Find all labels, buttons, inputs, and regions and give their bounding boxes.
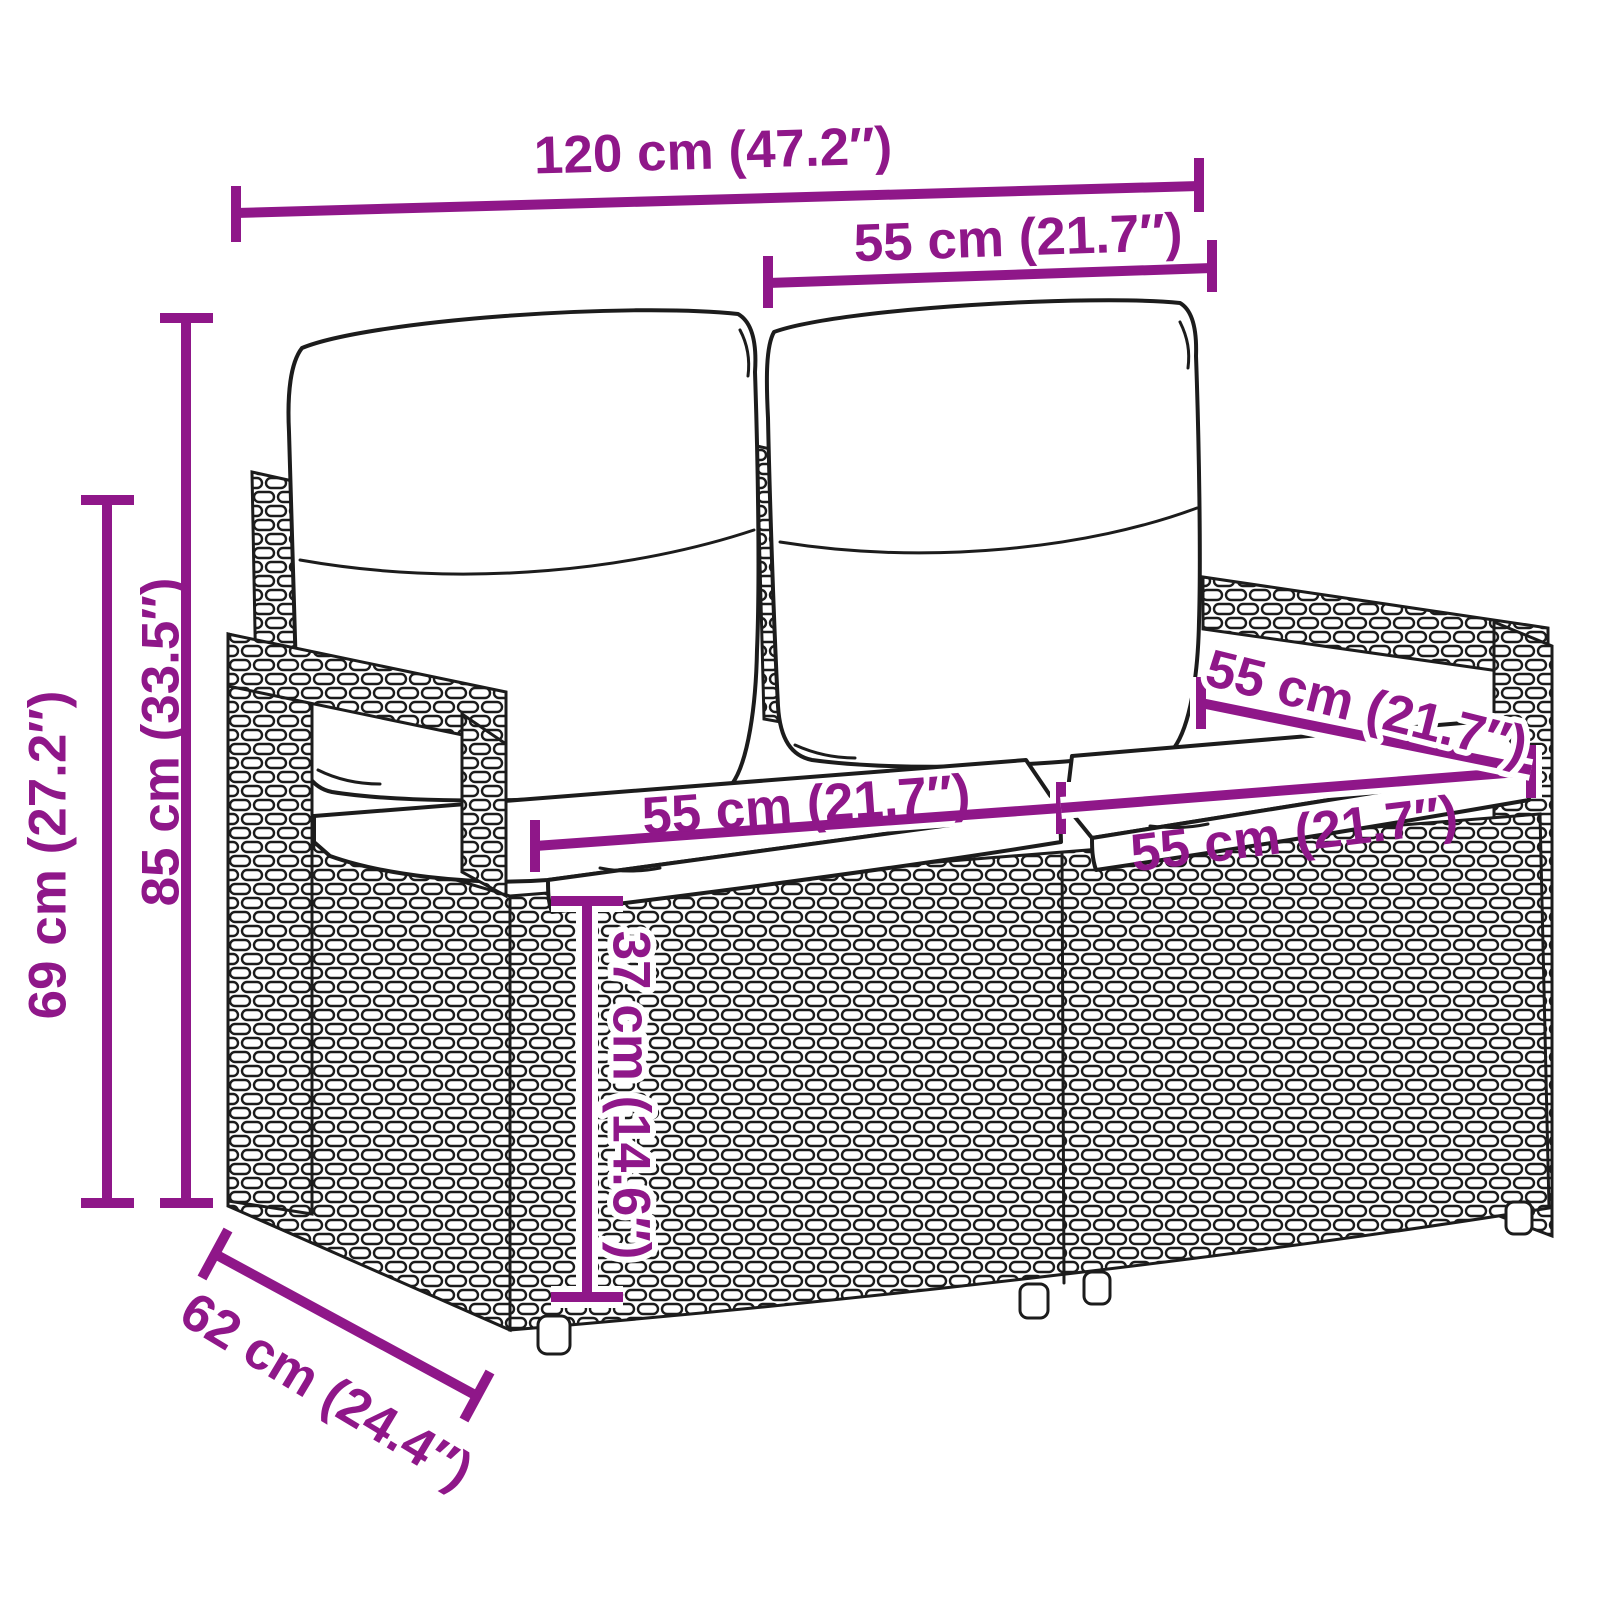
bench-foot — [1084, 1272, 1110, 1304]
dim-total-height: 85 cm (33.5″) — [132, 318, 213, 1203]
back-cushion-left — [289, 310, 759, 800]
dim-back-cushion-width: 55 cm (21.7″) — [768, 203, 1212, 308]
left-front-post — [228, 634, 312, 1214]
dim-arm-height: 69 cm (27.2″) — [19, 500, 134, 1203]
base-box — [228, 812, 1549, 1354]
bench-foot — [1506, 1202, 1532, 1234]
dim-label-total-width: 120 cm (47.2″) — [533, 117, 893, 186]
product-dimension-diagram: 120 cm (47.2″) 55 cm (21.7″) 85 cm (33.5… — [0, 0, 1600, 1600]
dim-line — [768, 268, 1212, 283]
dim-label-seat-height: 37 cm (14.6″) — [601, 931, 660, 1260]
bench-foot — [538, 1316, 570, 1354]
dim-label-arm-height: 69 cm (27.2″) — [19, 691, 78, 1020]
back-cushion-right — [767, 300, 1200, 766]
bench-foot — [1020, 1284, 1048, 1318]
left-armrest-support — [462, 714, 506, 896]
dim-label-back-cushion-width: 55 cm (21.7″) — [853, 203, 1184, 273]
module-seam — [1062, 853, 1064, 1283]
dim-label-total-height: 85 cm (33.5″) — [132, 578, 191, 907]
